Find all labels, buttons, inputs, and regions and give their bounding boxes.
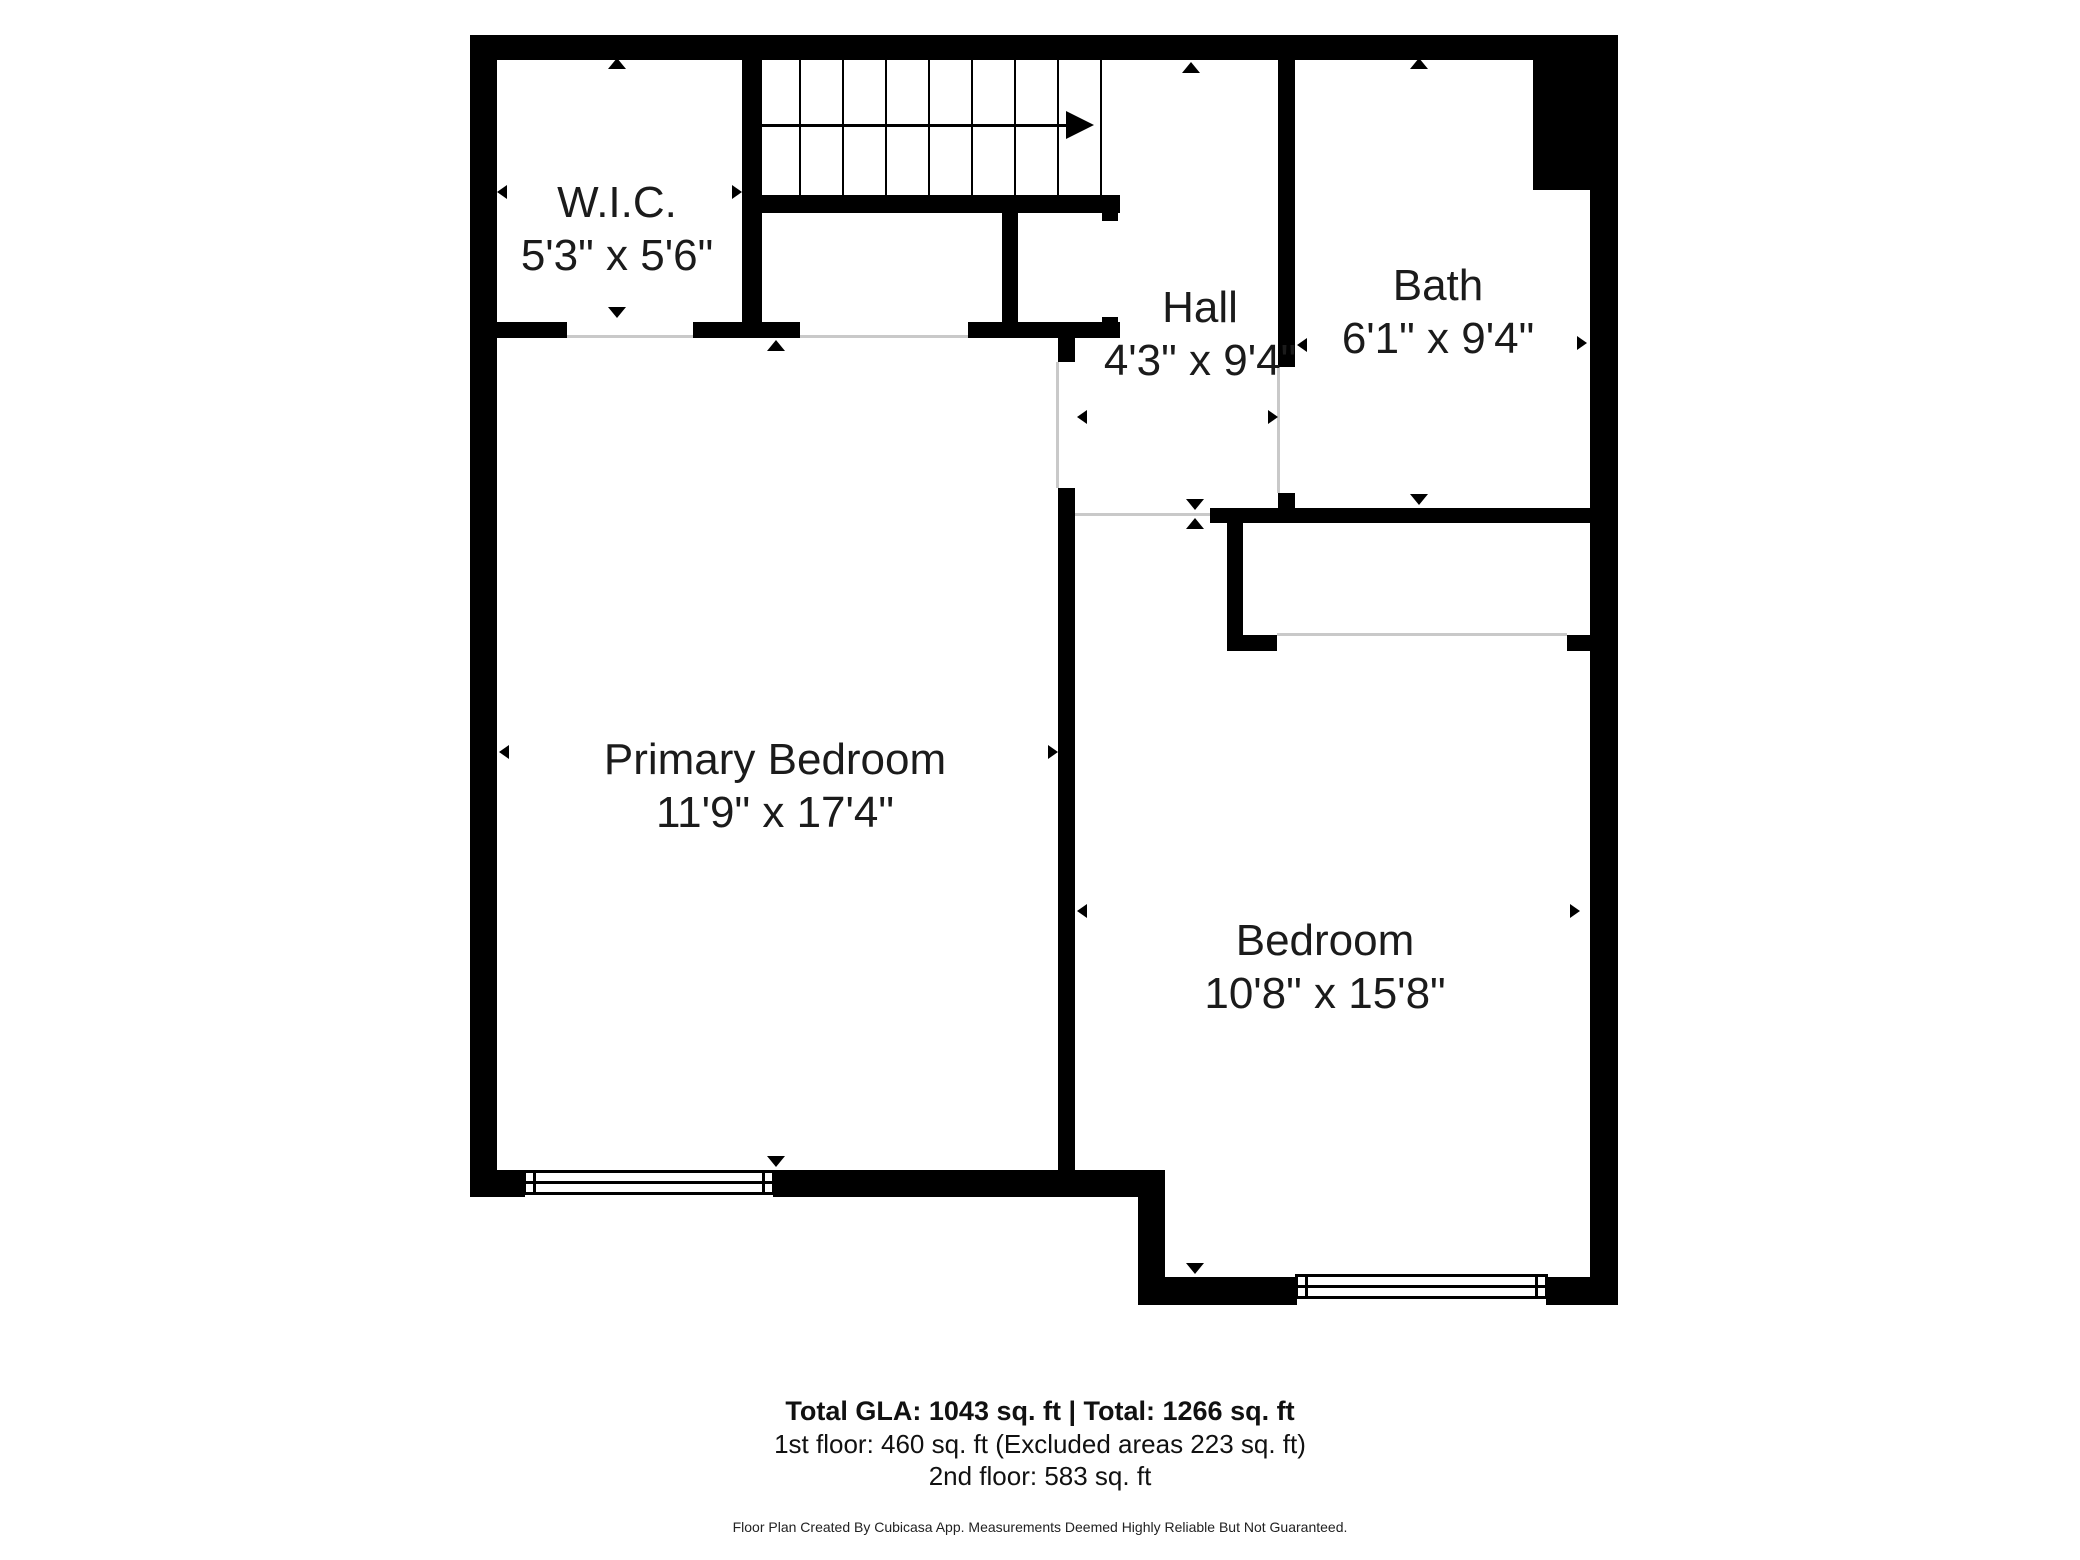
wall-landing-separator (1002, 213, 1018, 322)
wall-bedroom-separator (1058, 488, 1075, 1170)
measure-arrow-right-icon (1577, 336, 1587, 350)
window-bedroom (1295, 1274, 1548, 1299)
room-dimensions: 4'3" x 9'4" (1104, 334, 1296, 387)
room-dimensions: 11'9" x 17'4" (604, 786, 946, 839)
room-dimensions: 6'1" x 9'4" (1342, 312, 1534, 365)
wall-outer-top (470, 35, 1618, 60)
staircase (758, 58, 1103, 195)
footer-first-floor: 1st floor: 460 sq. ft (Excluded areas 22… (0, 1429, 2080, 1460)
room-dimensions: 5'3" x 5'6" (521, 229, 713, 282)
room-label-wic: W.I.C. 5'3" x 5'6" (521, 176, 713, 282)
wall-bottom-right-a (1165, 1277, 1297, 1305)
wall-stairs-bottom (742, 195, 1120, 213)
room-name: Primary Bedroom (604, 733, 946, 786)
footer-disclaimer: Floor Plan Created By Cubicasa App. Meas… (0, 1519, 2080, 1535)
stairs-direction-line (760, 124, 1072, 127)
measure-arrow-down-icon (767, 1156, 785, 1167)
measure-arrow-up-icon (767, 340, 785, 351)
door-threshold-landing (800, 335, 968, 338)
window-cap (1535, 1277, 1538, 1296)
room-name: Bedroom (1204, 914, 1445, 967)
wall-step-vertical (1138, 1170, 1165, 1305)
opening-closet (1277, 633, 1567, 636)
measure-arrow-down-icon (1186, 1263, 1204, 1274)
wall-closet-left (1227, 523, 1243, 651)
wall-outer-right (1590, 35, 1618, 1305)
room-name: Bath (1342, 259, 1534, 312)
wall-bottom-right-b (1546, 1277, 1618, 1305)
floor-plan-page: W.I.C. 5'3" x 5'6" Hall 4'3" x 9'4" Bath… (0, 0, 2080, 1560)
measure-arrow-right-icon (732, 185, 742, 199)
door-threshold-primary (1056, 362, 1059, 488)
measure-arrow-left-icon (1077, 410, 1087, 424)
wall-wic-bottom-left (492, 322, 567, 338)
measure-arrow-down-icon (608, 307, 626, 318)
room-label-bath: Bath 6'1" x 9'4" (1342, 259, 1534, 365)
room-dimensions: 10'8" x 15'8" (1204, 967, 1445, 1020)
room-label-bedroom: Bedroom 10'8" x 15'8" (1204, 914, 1445, 1020)
room-name: W.I.C. (521, 176, 713, 229)
measure-arrow-right-icon (1570, 904, 1580, 918)
wall-bottom-left-a (470, 1170, 525, 1197)
wall-closet-stub-right (1567, 635, 1590, 651)
window-primary-bedroom (523, 1170, 775, 1195)
window-cap (533, 1173, 536, 1192)
window-mullion (526, 1181, 772, 1184)
wall-stub-hall-top (1102, 213, 1118, 221)
stairs-direction-arrow-icon (1066, 111, 1094, 139)
wall-wic-bottom-right (693, 322, 800, 338)
window-cap (762, 1173, 765, 1192)
measure-arrow-up-icon (1410, 58, 1428, 69)
wall-corner-notch (1533, 58, 1593, 190)
measure-arrow-right-icon (1048, 745, 1058, 759)
room-label-primary-bedroom: Primary Bedroom 11'9" x 17'4" (604, 733, 946, 839)
wall-bath-bottom (1210, 508, 1590, 523)
window-mullion (1298, 1285, 1545, 1288)
door-threshold-wic (567, 335, 693, 338)
wall-landing-bottom (968, 322, 1120, 338)
window-cap (1305, 1277, 1308, 1296)
measure-arrow-left-icon (499, 745, 509, 759)
measure-arrow-right-icon (1268, 410, 1278, 424)
room-label-hall: Hall 4'3" x 9'4" (1104, 281, 1296, 387)
wall-outer-left (470, 35, 497, 1197)
wall-hall-left-stub (1058, 338, 1075, 362)
room-name: Hall (1104, 281, 1296, 334)
measure-arrow-up-icon (1186, 518, 1204, 529)
measure-arrow-down-icon (1186, 499, 1204, 510)
wall-closet-stub-left (1227, 635, 1277, 651)
footer-totals: Total GLA: 1043 sq. ft | Total: 1266 sq.… (0, 1396, 2080, 1427)
measure-arrow-up-icon (1182, 62, 1200, 73)
opening-hall-bedroom (1075, 513, 1210, 516)
footer-second-floor: 2nd floor: 583 sq. ft (0, 1461, 2080, 1492)
measure-arrow-up-icon (608, 58, 626, 69)
measure-arrow-left-icon (1297, 338, 1307, 352)
measure-arrow-left-icon (1077, 904, 1087, 918)
measure-arrow-down-icon (1410, 494, 1428, 505)
wall-bottom-left-b (773, 1170, 1165, 1197)
measure-arrow-left-icon (497, 185, 507, 199)
